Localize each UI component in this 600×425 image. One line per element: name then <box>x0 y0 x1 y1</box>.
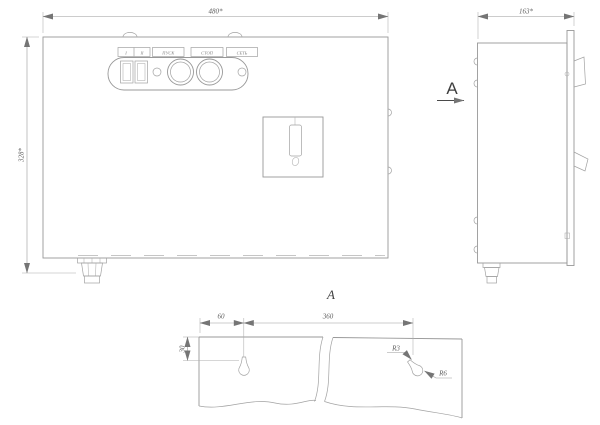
radius-r6-label: R6 <box>438 370 447 378</box>
inspection-window <box>263 117 323 177</box>
top-hanger-right <box>228 32 242 37</box>
rocker-switch-2-button <box>138 64 146 81</box>
section-horizontal-dimensions: 60 360 <box>200 313 413 358</box>
strip-bottom-wavy-right <box>325 402 463 419</box>
side-depth-label: 163* <box>519 8 534 16</box>
front-view: I II ПУСК СТОП СЕТЬ <box>18 8 392 284</box>
control-knob-1-outer <box>168 59 194 85</box>
inspection-window-keyhole <box>291 157 300 167</box>
inspection-window-slot <box>290 125 302 156</box>
fitting-hex-facet <box>96 263 97 276</box>
rocker-switch-1 <box>121 61 134 83</box>
strip-bottom-wavy-left <box>199 400 316 407</box>
panel-label-strip: I II ПУСК СТОП СЕТЬ <box>118 48 258 57</box>
side-pipe-fitting <box>483 263 500 283</box>
fitting-hex-facet <box>88 263 89 276</box>
section-title: А <box>326 287 335 302</box>
section-view-a: А 60 360 30 <box>179 287 463 418</box>
view-direction-indicator: А <box>437 79 464 101</box>
radius-r3-leader <box>387 353 412 360</box>
control-knob-2-inner <box>200 62 220 82</box>
side-front-bump <box>474 246 478 253</box>
radius-callouts: R3 R6 <box>387 345 452 379</box>
indicator-lamp-left <box>153 68 161 76</box>
strip-top-edge-right <box>333 338 462 340</box>
stage1-label: I <box>124 50 127 55</box>
break-line-left <box>315 337 324 402</box>
radius-r3-label: R3 <box>391 345 400 353</box>
view-direction-label: А <box>446 79 458 98</box>
mounting-flange-strip <box>199 337 462 418</box>
side-front-bump <box>474 58 478 65</box>
control-panel <box>108 58 248 91</box>
fitting-pipe-end <box>487 277 497 284</box>
right-edge-bump-upper <box>388 109 392 116</box>
stage2-label: II <box>140 50 144 55</box>
front-height-dimension: 328* <box>18 37 77 273</box>
side-front-bump <box>474 80 478 87</box>
rear-bracket-lower <box>574 152 588 171</box>
rocker-switch-1-button <box>123 64 131 81</box>
inspection-window-plate <box>263 117 323 177</box>
stop-label: СТОП <box>201 50 214 55</box>
front-height-label: 328* <box>18 148 26 164</box>
rocker-switch-2 <box>135 61 148 83</box>
front-width-dimension: 480* <box>43 8 388 34</box>
keyhole-slot-left <box>239 357 250 375</box>
side-front-bump <box>474 217 478 224</box>
technical-drawing-canvas: I II ПУСК СТОП СЕТЬ <box>0 0 600 425</box>
top-hanger-left <box>123 32 137 37</box>
start-label: ПУСК <box>161 50 175 55</box>
section-vertical-dimension: 30 <box>179 337 240 361</box>
control-knob-2-outer <box>197 59 223 85</box>
side-view: 163* А <box>437 8 588 284</box>
break-line-right <box>325 338 334 402</box>
fitting-flange <box>483 263 500 268</box>
technical-drawing-page: I II ПУСК СТОП СЕТЬ <box>0 0 600 425</box>
power-label: СЕТЬ <box>237 50 248 55</box>
fitting-pipe-end <box>85 276 100 283</box>
rear-bracket-upper <box>574 57 586 87</box>
dim-30-label: 30 <box>179 345 187 354</box>
fitting-hex-nut <box>82 263 103 276</box>
front-width-label: 480* <box>209 8 224 16</box>
dim-60-label: 60 <box>218 313 226 321</box>
rear-mounting-flange <box>567 31 574 266</box>
indicator-lamp-right <box>238 68 246 76</box>
cabinet-side-outline <box>478 43 568 263</box>
keyhole-slot-right <box>405 357 425 378</box>
fitting-hex-nut <box>485 268 500 277</box>
control-knob-1-inner <box>171 62 191 82</box>
dim-360-label: 360 <box>322 313 334 321</box>
side-depth-dimension: 163* <box>478 8 574 40</box>
cabinet-front-outline <box>43 37 388 258</box>
right-edge-bump-lower <box>388 167 392 174</box>
front-pipe-fitting <box>78 258 107 283</box>
